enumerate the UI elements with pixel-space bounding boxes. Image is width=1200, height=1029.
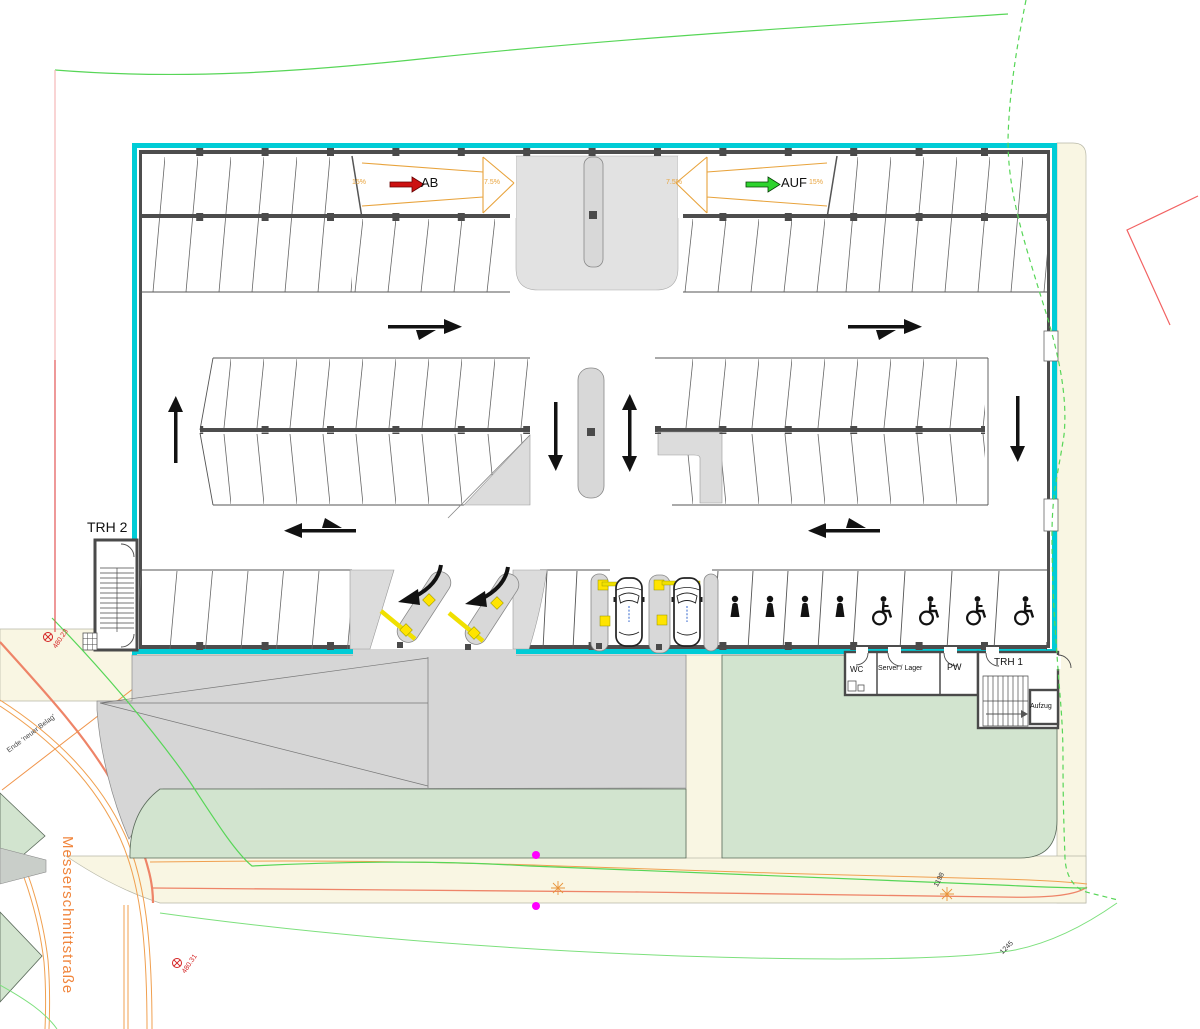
charging-station-icon (657, 615, 667, 625)
slope-label: 15% (352, 179, 366, 186)
north-wall-cyan (132, 143, 1057, 148)
parking-garage-site-plan: AB AUF 15% 7.5% 7.5% 15% TRH 2 TRH 1 WC … (0, 0, 1200, 1029)
stairwell-trh2-label: TRH 2 (87, 520, 127, 534)
magenta-point (532, 902, 540, 910)
tree-symbol-icon (940, 887, 954, 901)
east-door (1044, 331, 1058, 361)
slope-label: 15% (809, 179, 823, 186)
survey-point-icon (173, 959, 182, 968)
tree-symbol-icon (551, 881, 565, 895)
charging-station-icon (600, 616, 610, 626)
car-icon (672, 578, 703, 646)
stairwell-trh2 (83, 540, 137, 650)
east-door (1044, 499, 1058, 531)
room-server-label: Server / Lager (878, 665, 922, 672)
ramp-up (676, 156, 837, 218)
slope-label: 7.5% (484, 179, 500, 186)
stairwell-trh1-label: TRH 1 (994, 658, 1023, 668)
ramp-down-label: AB (421, 176, 438, 189)
ramp-up-label: AUF (781, 176, 807, 189)
room-wc-label: WC (850, 666, 863, 674)
plan-drawing (0, 0, 1200, 1029)
car-icon (614, 578, 645, 646)
magenta-point (532, 851, 540, 859)
street-name-label: Messerschmittstraße (60, 836, 75, 994)
room-pw-label: PW (947, 663, 962, 672)
room-elevator-label: Aufzug (1030, 703, 1052, 710)
slope-label: 7.5% (666, 179, 682, 186)
